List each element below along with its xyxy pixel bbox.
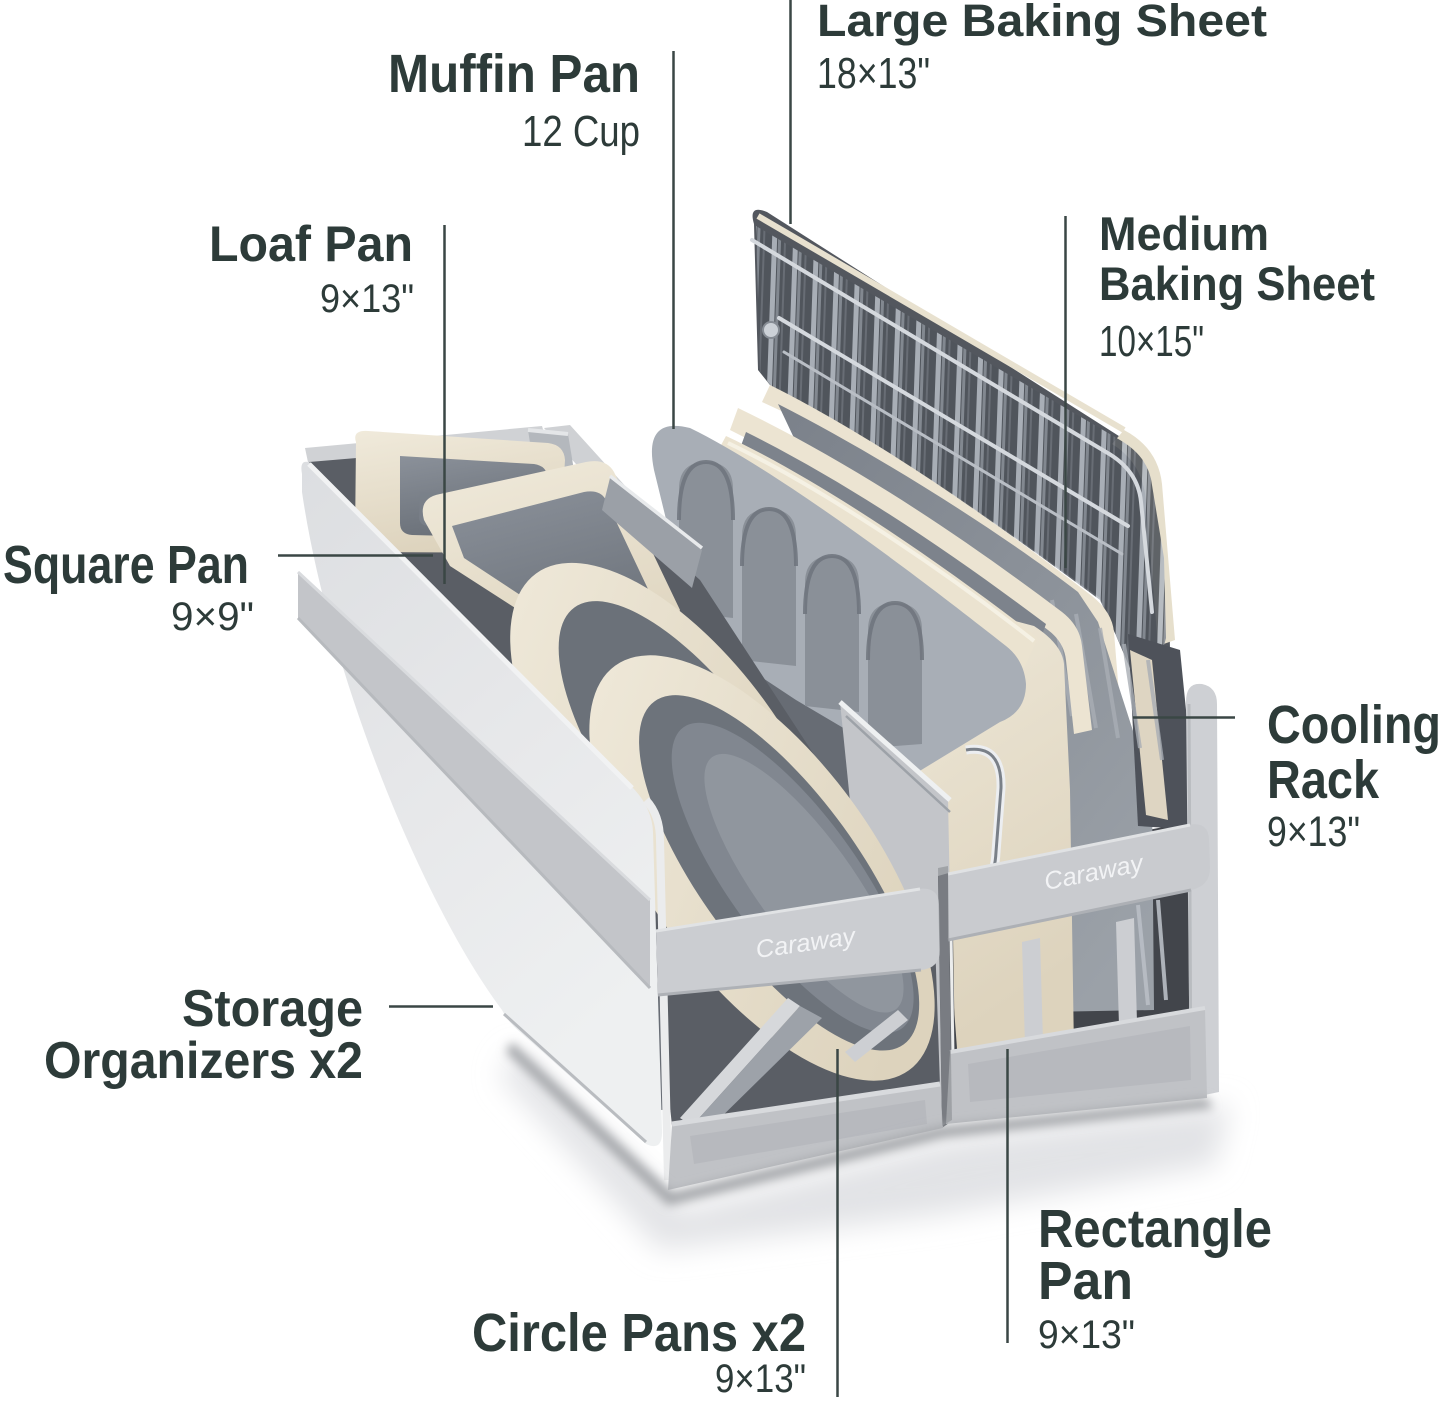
svg-text:Rack: Rack [1267, 750, 1380, 810]
svg-text:Storage: Storage [182, 980, 363, 1038]
svg-text:9×9": 9×9" [171, 595, 254, 639]
svg-text:9×13": 9×13" [320, 277, 414, 321]
svg-text:9×13": 9×13" [1267, 808, 1360, 856]
svg-text:Square Pan: Square Pan [3, 535, 249, 595]
svg-text:Circle Pans x2: Circle Pans x2 [472, 1303, 806, 1363]
svg-text:Large Baking Sheet: Large Baking Sheet [817, 0, 1267, 46]
svg-text:Rectangle: Rectangle [1038, 1199, 1272, 1259]
svg-text:Pan: Pan [1038, 1251, 1133, 1311]
svg-text:10×15": 10×15" [1099, 317, 1204, 366]
svg-text:Loaf Pan: Loaf Pan [209, 216, 413, 272]
svg-text:Medium: Medium [1099, 207, 1269, 260]
svg-text:9×13": 9×13" [715, 1357, 806, 1401]
svg-text:18×13": 18×13" [817, 49, 930, 98]
svg-text:Muffin Pan: Muffin Pan [388, 44, 640, 104]
svg-text:Baking Sheet: Baking Sheet [1099, 257, 1375, 310]
svg-text:12 Cup: 12 Cup [522, 107, 640, 156]
svg-text:Organizers x2: Organizers x2 [44, 1032, 363, 1090]
svg-text:Cooling: Cooling [1267, 695, 1441, 755]
svg-text:9×13": 9×13" [1038, 1313, 1135, 1357]
